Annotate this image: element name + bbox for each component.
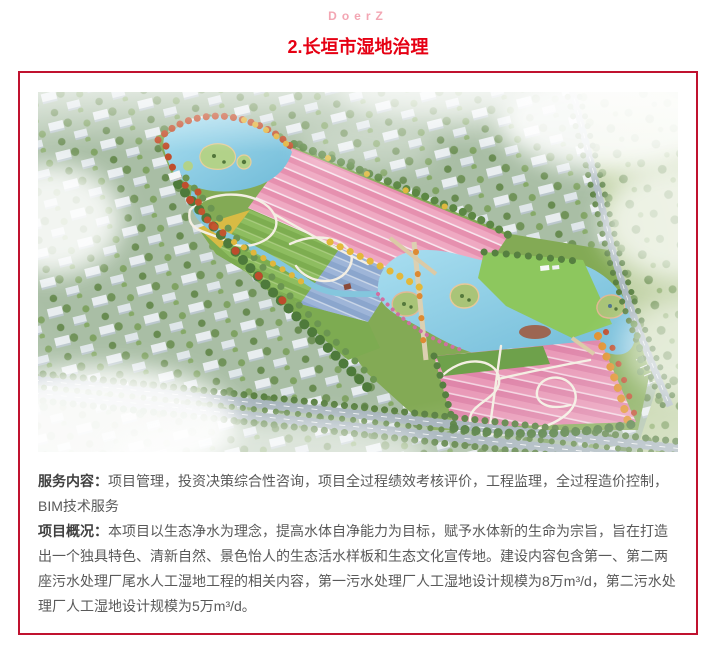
edge-haze [38,92,678,452]
page-title: 2.长垣市湿地治理 [0,33,716,59]
service-paragraph: 服务内容：项目管理，投资决策综合性咨询，项目全过程绩效考核评价，工程监理，全过程… [38,469,678,519]
overview-text: 本项目以生态净水为理念，提高水体自净能力为目标，赋予水体新的生命为宗旨，旨在打造… [38,523,676,614]
project-card: 服务内容：项目管理，投资决策综合性咨询，项目全过程绩效考核评价，工程监理，全过程… [18,71,698,635]
project-rendering-image [38,92,678,452]
overview-label: 项目概况： [38,523,108,539]
service-label: 服务内容： [38,473,108,489]
project-description: 服务内容：项目管理，投资决策综合性咨询，项目全过程绩效考核评价，工程监理，全过程… [38,452,678,619]
service-text: 项目管理，投资决策综合性咨询，项目全过程绩效考核评价，工程监理，全过程造价控制，… [38,473,668,514]
aerial-rendering-svg [38,92,678,452]
brand-watermark: DoerZ [0,0,716,23]
article-page: DoerZ 2.长垣市湿地治理 [0,0,716,652]
overview-paragraph: 项目概况：本项目以生态净水为理念，提高水体自净能力为目标，赋予水体新的生命为宗旨… [38,519,678,619]
